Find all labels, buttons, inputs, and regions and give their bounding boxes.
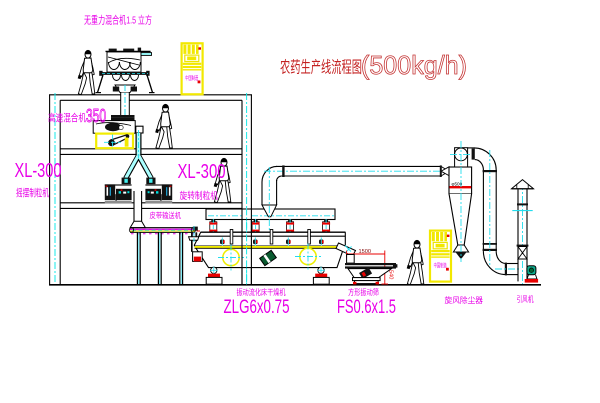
svg-text:XL-300: XL-300 <box>178 160 226 183</box>
svg-text:高速混合机: 高速混合机 <box>48 112 86 125</box>
svg-text:皮带输送机: 皮带输送机 <box>150 211 182 220</box>
svg-text:旋风除尘器: 旋风除尘器 <box>445 295 484 305</box>
svg-text:540: 540 <box>388 270 394 279</box>
svg-text:ZLG6x0.75: ZLG6x0.75 <box>224 297 290 318</box>
svg-text:旋转制粒机: 旋转制粒机 <box>180 190 219 202</box>
svg-text:摇摆制粒机: 摇摆制粒机 <box>16 187 49 200</box>
svg-text:350: 350 <box>86 105 106 126</box>
svg-text:1500: 1500 <box>359 249 371 255</box>
svg-text:FS0.6x1.5: FS0.6x1.5 <box>337 297 396 318</box>
svg-text:振动流化床干燥机: 振动流化床干燥机 <box>237 287 286 297</box>
svg-text:XL-300: XL-300 <box>15 159 62 182</box>
svg-text:无重力混合机1.5 立方: 无重力混合机1.5 立方 <box>84 14 152 27</box>
svg-text:农药生产线流程图: 农药生产线流程图 <box>280 59 362 77</box>
svg-text:方形振动筛: 方形振动筛 <box>348 287 379 297</box>
svg-text:引风机: 引风机 <box>517 294 534 304</box>
svg-text:(500kg/h): (500kg/h) <box>361 50 467 80</box>
